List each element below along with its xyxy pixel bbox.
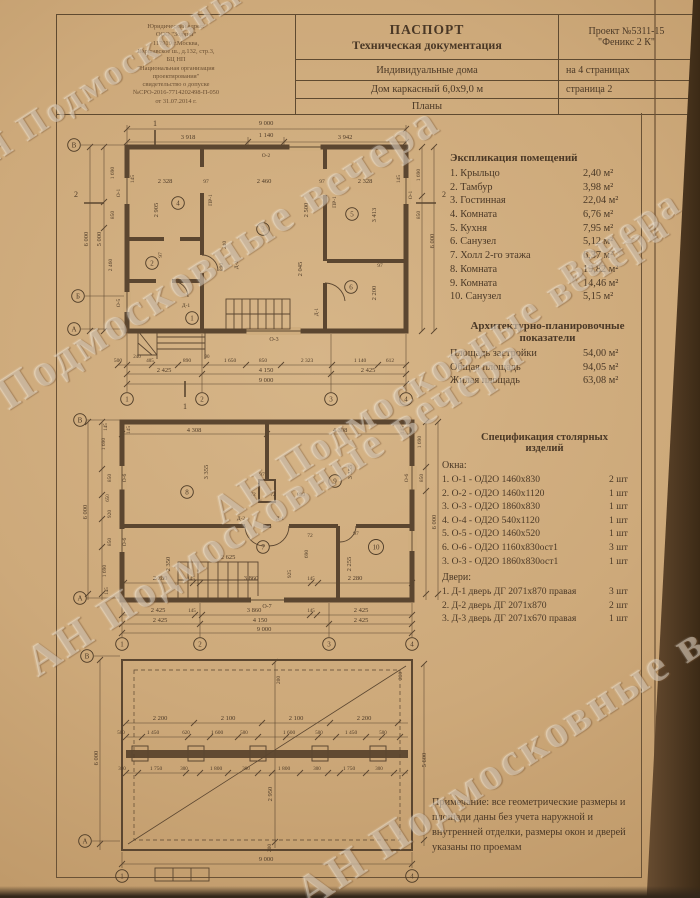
svg-text:Д-1: Д-1 — [276, 516, 285, 522]
dim-label: Д-1 — [182, 303, 191, 309]
dim-label: 3 860 — [247, 607, 262, 614]
door-spec: 3. Д-3 дверь ДГ 2071х670 правая — [442, 612, 609, 626]
dim-label: 1 690 — [417, 436, 423, 449]
spec-title-1: Спецификация столярных — [442, 432, 647, 443]
svg-text:9 000: 9 000 — [259, 856, 274, 863]
svg-text:2: 2 — [150, 259, 154, 267]
window-row: 2. О-2 - ОД2О 1460х1120 1 шт — [442, 487, 647, 501]
dim-label: 9 000 — [257, 626, 272, 633]
sheet-title-cell: Планы — [296, 99, 558, 114]
svg-text:850: 850 — [419, 474, 425, 483]
dim-label: 300 — [375, 767, 383, 772]
dim-label: 200 — [267, 844, 273, 853]
window-spec: 2. О-2 - ОД2О 1460х1120 — [442, 487, 609, 501]
room-area: 7,95 м² — [583, 222, 645, 236]
svg-text:240: 240 — [222, 241, 228, 250]
plan-marker: А — [79, 835, 92, 848]
room-area: 6,37 м² — [583, 249, 645, 263]
svg-text:500: 500 — [315, 731, 323, 736]
window-qty: 2 шт — [609, 473, 647, 487]
pages-count: на 4 страницах — [566, 65, 630, 76]
svg-text:72: 72 — [270, 492, 276, 498]
stamp-line: БЦ НП — [166, 56, 185, 64]
window-qty: 1 шт — [609, 514, 647, 528]
room-row: 8. Комната 19,82 м² — [450, 263, 645, 277]
joinery-spec: Спецификация столярных изделий Окна: 1. … — [442, 432, 647, 626]
dim-label: 1 690 — [101, 438, 107, 451]
dim-label: 145 — [187, 577, 195, 582]
svg-text:2: 2 — [442, 190, 446, 199]
svg-text:850: 850 — [107, 538, 113, 547]
house-type: Дом каркасный 6,0х9,0 м — [371, 84, 483, 95]
dim-label: 500 — [240, 731, 248, 736]
plan-marker: Б — [72, 290, 85, 303]
svg-text:А: А — [71, 325, 76, 333]
dim-label: 1 600 — [283, 730, 296, 736]
photo-background-bottom — [0, 886, 700, 898]
svg-text:1 750: 1 750 — [343, 766, 356, 772]
dim-label: 240 — [133, 355, 141, 360]
window-spec: 3. О-3 - ОД2О 1860х830ост1 — [442, 555, 609, 569]
dim-label: 1 450 — [147, 730, 160, 736]
svg-text:300: 300 — [118, 767, 126, 772]
project-name: "Феникс 2 К" — [598, 37, 655, 48]
stamp-line: свидетельство о допуске — [143, 81, 210, 89]
company-stamp: Юридический адрес:ООО "Зодчий"117919 г.М… — [57, 15, 296, 114]
plan-marker: 1 — [121, 393, 134, 406]
svg-text:1 800: 1 800 — [210, 766, 223, 772]
dim-label: 920 — [107, 510, 113, 519]
room-name: 10. Санузел — [450, 290, 583, 304]
svg-text:2 045: 2 045 — [297, 262, 304, 277]
dim-label: 145 — [104, 423, 109, 431]
svg-text:1: 1 — [120, 872, 124, 880]
window-spec: 3. О-3 - ОД2О 1860х830 — [442, 500, 609, 514]
empty-cell — [558, 99, 694, 114]
window-qty: 1 шт — [609, 555, 647, 569]
dim-label: 650 — [106, 494, 111, 502]
svg-text:97: 97 — [259, 472, 265, 478]
room-name: 7. Холл 2-го этажа — [450, 249, 583, 263]
plan-marker: 9 — [329, 475, 342, 488]
svg-text:Б: Б — [76, 292, 80, 300]
dim-label: 2 425 — [157, 367, 172, 374]
plan-marker: 10 — [369, 540, 384, 555]
svg-text:145: 145 — [188, 609, 196, 614]
area-indicators: Архитектурно-планировочные показатели Пл… — [450, 320, 645, 388]
dim-label: 2 323 — [301, 358, 314, 364]
stamp-line: 117919 г.Москва, — [153, 40, 199, 48]
dim-label: О-1 — [116, 188, 122, 197]
svg-text:240: 240 — [133, 355, 141, 360]
window-row: 1. О-1 - ОД2О 1460х830 2 шт — [442, 473, 647, 487]
svg-text:3 355: 3 355 — [203, 465, 210, 480]
indicator-name: Жилая площадь — [450, 374, 583, 388]
svg-text:В: В — [72, 141, 77, 149]
svg-text:1 690: 1 690 — [417, 436, 423, 449]
dim-label: 90 — [205, 355, 211, 360]
dim-label: 300 — [118, 767, 126, 772]
plan-marker: 4 — [406, 870, 419, 883]
plan-marker: 6 — [345, 281, 358, 294]
svg-text:О-1: О-1 — [116, 188, 122, 197]
dim-label: О-7 — [262, 604, 271, 610]
window-spec: 1. О-1 - ОД2О 1460х830 — [442, 473, 609, 487]
dim-label: 1 690 — [110, 167, 116, 180]
svg-text:890: 890 — [183, 358, 192, 364]
svg-text:2 350: 2 350 — [165, 557, 172, 572]
plan-marker: 2 — [146, 257, 159, 270]
dim-label: 5 000 — [96, 232, 103, 247]
svg-text:145: 145 — [307, 609, 315, 614]
dim-label: 1 140 — [259, 132, 274, 139]
dim-label: 620 — [182, 731, 190, 736]
svg-text:2 100: 2 100 — [221, 715, 236, 722]
room-area: 5,15 м² — [583, 290, 645, 304]
doc-type: Индивидуальные дома — [376, 65, 478, 76]
svg-text:1 690: 1 690 — [416, 169, 422, 182]
svg-text:612: 612 — [386, 358, 395, 364]
dim-label: 850 — [107, 474, 113, 483]
svg-text:300: 300 — [242, 767, 250, 772]
svg-text:4 150: 4 150 — [259, 367, 274, 374]
foundation-plan: ВА6 0005 6002002002 2002 1002 1002 20050… — [60, 648, 455, 893]
svg-text:1 690: 1 690 — [110, 167, 116, 180]
dim-label: 2 905 — [153, 203, 160, 218]
room-area: 5,12 м² — [583, 235, 645, 249]
title-block: Юридический адрес:ООО "Зодчий"117919 г.М… — [56, 14, 695, 115]
dim-label: 2 425 — [153, 617, 168, 624]
svg-text:1 650: 1 650 — [224, 358, 237, 364]
dim-label: 890 — [297, 492, 306, 498]
svg-text:Д-1: Д-1 — [182, 303, 191, 309]
svg-text:4: 4 — [404, 395, 408, 403]
dim-label: 2 255 — [346, 557, 353, 572]
room-area: 19,82 м² — [583, 263, 645, 277]
dim-label: 2 500 — [303, 203, 310, 218]
dim-label: 3 355 — [347, 465, 354, 480]
room-name: 9. Комната — [450, 277, 583, 291]
svg-text:1 450: 1 450 — [345, 730, 358, 736]
dim-label: 72 — [270, 492, 276, 498]
svg-text:3: 3 — [261, 225, 265, 233]
dim-label: 145 — [105, 587, 110, 595]
dim-label: 2 425 — [361, 367, 376, 374]
svg-text:72: 72 — [250, 492, 256, 498]
dim-label: 3 413 — [371, 208, 378, 223]
stamp-line: Юридический адрес: — [147, 23, 204, 31]
dim-label: 925 — [287, 570, 293, 579]
room-schedule: Экспликация помещений 1. Крыльцо 2,40 м²… — [450, 152, 645, 304]
dim-label: 2 625 — [221, 554, 236, 561]
svg-text:3 413: 3 413 — [371, 208, 378, 223]
dim-label: 2 460 — [108, 259, 114, 272]
svg-text:2 500: 2 500 — [303, 203, 310, 218]
plan-marker: В — [74, 414, 87, 427]
dim-label: 97 — [353, 531, 359, 537]
svg-text:2 425: 2 425 — [153, 617, 168, 624]
svg-text:72: 72 — [307, 533, 313, 539]
svg-text:145: 145 — [396, 175, 402, 184]
dim-label: 2 280 — [153, 575, 168, 582]
door-spec: 1. Д-1 дверь ДГ 2071х870 правая — [442, 585, 609, 599]
dim-label: 6 000 — [429, 234, 436, 249]
svg-text:1 450: 1 450 — [147, 730, 160, 736]
plan-marker: 3 — [325, 393, 338, 406]
svg-text:4: 4 — [176, 199, 180, 207]
room-row: 10. Санузел 5,15 м² — [450, 290, 645, 304]
indicator-row: Площадь застройки 54,00 м² — [450, 347, 645, 361]
svg-text:4 308: 4 308 — [187, 427, 202, 434]
window-qty: 3 шт — [609, 541, 647, 555]
svg-text:2: 2 — [200, 395, 204, 403]
dim-label: 612 — [386, 358, 395, 364]
house-type-cell: Дом каркасный 6,0х9,0 м — [296, 81, 558, 99]
svg-text:2: 2 — [74, 190, 78, 199]
plan-marker: А — [74, 592, 87, 605]
svg-text:2 425: 2 425 — [354, 617, 369, 624]
svg-text:850: 850 — [110, 211, 116, 220]
dim-label: 2 200 — [371, 286, 378, 301]
dim-label: 145 — [130, 175, 136, 184]
note-line: внутренней отделки, размеры окон и двере… — [432, 826, 640, 841]
dim-label: 1 750 — [150, 766, 163, 772]
dim-label: 97 — [259, 472, 265, 478]
dim-label: 1 690 — [416, 169, 422, 182]
dim-label: 145 — [307, 609, 315, 614]
svg-text:10: 10 — [373, 543, 381, 551]
doc-subtitle: Техническая документация — [352, 38, 502, 53]
dim-label: 2 200 — [357, 715, 372, 722]
dim-label: 4 150 — [253, 617, 268, 624]
svg-text:97: 97 — [203, 179, 209, 185]
dim-label: 9 000 — [259, 120, 274, 127]
svg-text:2 625: 2 625 — [221, 554, 236, 561]
dim-label: 145 — [188, 609, 196, 614]
dim-label: 2 280 — [348, 575, 363, 582]
svg-text:А: А — [82, 837, 87, 845]
door-row: 1. Д-1 дверь ДГ 2071х870 правая 3 шт — [442, 585, 647, 599]
svg-text:200: 200 — [398, 672, 404, 681]
plan-marker: В — [68, 139, 81, 152]
svg-text:500: 500 — [114, 358, 123, 364]
svg-text:500: 500 — [117, 731, 125, 736]
project-cell: Проект №5311-15 "Феникс 2 К" — [558, 15, 694, 60]
dim-label: 6 000 — [93, 751, 100, 766]
svg-text:145: 145 — [307, 577, 315, 582]
svg-text:850: 850 — [416, 211, 422, 220]
plan-marker: 1 — [116, 870, 129, 883]
room-area: 14,46 м² — [583, 277, 645, 291]
svg-text:4 308: 4 308 — [333, 427, 348, 434]
dim-label: 300 — [242, 767, 250, 772]
svg-text:4 150: 4 150 — [253, 617, 268, 624]
svg-text:2 323: 2 323 — [301, 358, 314, 364]
svg-text:О-2: О-2 — [262, 153, 271, 159]
svg-text:890: 890 — [219, 263, 225, 272]
door-qty: 2 шт — [609, 599, 647, 613]
room-name: 1. Крыльцо — [450, 167, 583, 181]
svg-text:145: 145 — [126, 426, 132, 435]
dim-label: 690 — [304, 550, 310, 559]
dim-label: 1 690 — [102, 565, 108, 578]
dim-label: 3 355 — [203, 465, 210, 480]
dim-label: 1 — [153, 119, 157, 128]
svg-text:О-3: О-3 — [269, 337, 278, 343]
sheet-title: Планы — [412, 101, 442, 112]
dim-label: 1 800 — [278, 766, 291, 772]
dim-label: Д-1 — [314, 308, 320, 317]
svg-text:О-6: О-6 — [122, 537, 128, 546]
room-area: 2,40 м² — [583, 167, 645, 181]
dim-label: О-6 — [404, 473, 410, 482]
dim-label: 500 — [117, 731, 125, 736]
doors-label: Двери: — [442, 570, 647, 585]
svg-text:90: 90 — [205, 355, 211, 360]
note-line: площади даны без учета наружной и — [432, 811, 640, 826]
indicator-value: 63,08 м² — [583, 374, 645, 388]
window-row: 5. О-5 - ОД2О 1460х520 1 шт — [442, 527, 647, 541]
door-row: 2. Д-2 дверь ДГ 2071х870 2 шт — [442, 599, 647, 613]
dim-label: 4 308 — [187, 427, 202, 434]
svg-text:О-7: О-7 — [262, 604, 271, 610]
svg-text:1 800: 1 800 — [278, 766, 291, 772]
indicators-title-1: Архитектурно-планировочные — [450, 320, 645, 332]
floor-plan-1: 9 00013 9181 1403 942О-21452 328972 4609… — [60, 115, 445, 415]
dim-label: 2 100 — [289, 715, 304, 722]
room-name: 2. Тамбур — [450, 181, 583, 195]
svg-text:2 328: 2 328 — [358, 178, 373, 185]
svg-text:5 600: 5 600 — [421, 753, 428, 768]
plan-marker: 3 — [257, 223, 270, 236]
dim-label: 2 425 — [354, 617, 369, 624]
dim-label: 3 942 — [338, 134, 353, 141]
svg-text:3 942: 3 942 — [338, 134, 353, 141]
stamp-line: ООО "Зодчий" — [156, 31, 196, 39]
dim-label: 890 — [183, 358, 192, 364]
indicator-name: Общая площадь — [450, 361, 583, 375]
svg-text:Д-1: Д-1 — [314, 308, 320, 317]
svg-text:1 750: 1 750 — [150, 766, 163, 772]
dim-label: 6 000 — [82, 505, 89, 520]
svg-text:920: 920 — [107, 510, 113, 519]
svg-text:2 460: 2 460 — [257, 178, 272, 185]
dim-label: 850 — [416, 211, 422, 220]
svg-text:3: 3 — [329, 395, 333, 403]
indicator-row: Жилая площадь 63,08 м² — [450, 374, 645, 388]
room-name: 3. Гостинная — [450, 194, 583, 208]
room-name: 6. Санузел — [450, 235, 583, 249]
svg-text:1 600: 1 600 — [283, 730, 296, 736]
svg-text:Д-2: Д-2 — [237, 516, 246, 522]
dim-label: 500 — [379, 731, 387, 736]
dim-label: 72 — [250, 492, 256, 498]
dim-label: 1 650 — [224, 358, 237, 364]
dim-label: 97 — [319, 179, 325, 185]
svg-text:1 140: 1 140 — [354, 358, 367, 364]
svg-text:1 140: 1 140 — [259, 132, 274, 139]
stamp-line: №СРО-2016-7714202498-П-050 — [133, 89, 219, 97]
dim-label: 72 — [307, 533, 313, 539]
svg-text:97: 97 — [319, 179, 325, 185]
room-row: 9. Комната 14,46 м² — [450, 277, 645, 291]
svg-text:3 918: 3 918 — [181, 134, 196, 141]
dim-label: 5 600 — [421, 753, 428, 768]
window-spec: 5. О-5 - ОД2О 1460х520 — [442, 527, 609, 541]
dim-label: 145 — [396, 175, 402, 184]
dim-label: 890 — [219, 263, 225, 272]
dim-label: 3 860 — [244, 575, 259, 582]
window-row: 6. О-6 - ОД2О 1160х830ост1 3 шт — [442, 541, 647, 555]
window-row: 3. О-3 - ОД2О 1860х830 1 шт — [442, 500, 647, 514]
dim-label: 500 — [114, 358, 123, 364]
document-page: Юридический адрес:ООО "Зодчий"117919 г.М… — [0, 0, 700, 898]
window-qty: 1 шт — [609, 527, 647, 541]
svg-text:300: 300 — [180, 767, 188, 772]
svg-text:97: 97 — [353, 531, 359, 537]
dim-label: 300 — [313, 767, 321, 772]
svg-text:2 280: 2 280 — [153, 575, 168, 582]
svg-text:В: В — [85, 652, 90, 660]
svg-text:2 328: 2 328 — [158, 178, 173, 185]
svg-text:2 950: 2 950 — [267, 787, 274, 802]
note-line: указаны по проемам — [432, 841, 640, 856]
plan-marker: В — [81, 650, 94, 663]
room-row: 6. Санузел 5,12 м² — [450, 235, 645, 249]
svg-text:3 355: 3 355 — [347, 465, 354, 480]
svg-text:1 600: 1 600 — [211, 730, 224, 736]
svg-text:6: 6 — [349, 283, 353, 291]
svg-text:Д-2: Д-2 — [234, 261, 240, 270]
room-name: 8. Комната — [450, 263, 583, 277]
svg-text:2 200: 2 200 — [357, 715, 372, 722]
windows-label: Окна: — [442, 458, 647, 473]
svg-text:145: 145 — [187, 577, 195, 582]
dim-label: 850 — [107, 538, 113, 547]
dim-label: 145 — [126, 426, 132, 435]
dim-label: 97 — [158, 252, 164, 258]
room-row: 5. Кухня 7,95 м² — [450, 222, 645, 236]
dim-label: 200 — [398, 672, 404, 681]
svg-text:2 460: 2 460 — [108, 259, 114, 272]
svg-text:ПР-1: ПР-1 — [332, 196, 338, 208]
plan-marker: 8 — [181, 486, 194, 499]
svg-text:690: 690 — [304, 550, 310, 559]
svg-text:890: 890 — [297, 492, 306, 498]
room-row: 4. Комната 6,76 м² — [450, 208, 645, 222]
note-line: Примечание: все геометрические размеры и — [432, 796, 640, 811]
svg-text:6 000: 6 000 — [429, 234, 436, 249]
svg-text:2 255: 2 255 — [346, 557, 353, 572]
dim-label: 4 308 — [333, 427, 348, 434]
svg-text:О-1: О-1 — [408, 190, 414, 199]
svg-text:1: 1 — [190, 314, 194, 322]
svg-text:500: 500 — [379, 731, 387, 736]
svg-text:300: 300 — [313, 767, 321, 772]
plan-marker: 2 — [196, 393, 209, 406]
window-row: 3. О-3 - ОД2О 1860х830ост1 1 шт — [442, 555, 647, 569]
dim-label: 9 000 — [259, 377, 274, 384]
floor-plan-2: ВА4 3084 3081451453 3553 35589977272890Д… — [60, 410, 445, 660]
dim-label: 1 800 — [210, 766, 223, 772]
svg-text:4: 4 — [410, 872, 414, 880]
indicators-title-2: показатели — [450, 332, 645, 344]
window-qty: 1 шт — [609, 500, 647, 514]
dim-label: 2 045 — [297, 262, 304, 277]
room-area: 3,98 м² — [583, 181, 645, 195]
dim-label: 2 460 — [257, 178, 272, 185]
svg-text:1 690: 1 690 — [102, 565, 108, 578]
